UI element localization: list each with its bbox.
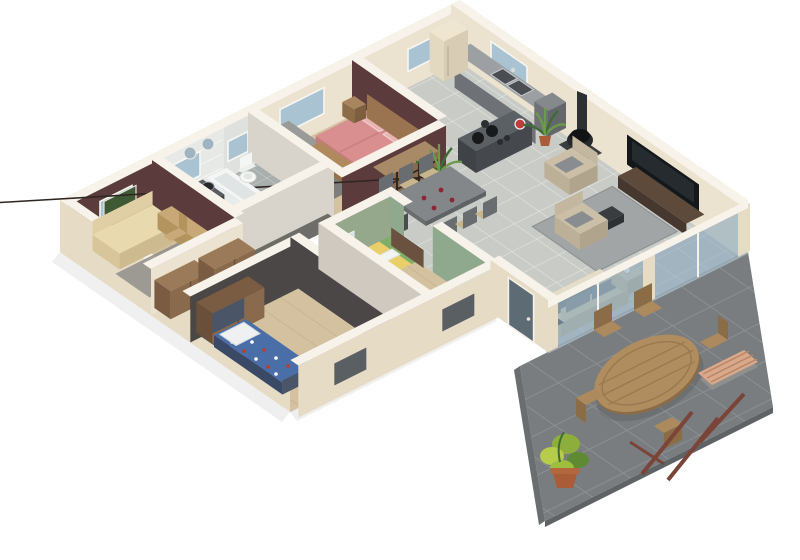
faucet — [511, 68, 515, 72]
wine-glass — [439, 188, 444, 193]
bath-mirror — [184, 147, 196, 159]
wine-glass — [422, 196, 427, 201]
bowl — [504, 135, 510, 141]
pot — [481, 120, 489, 128]
fridge — [430, 20, 468, 82]
cooktop-burner — [472, 132, 484, 144]
wine-glass — [432, 206, 437, 211]
bath-mirror — [202, 138, 214, 150]
door-handle — [527, 317, 531, 321]
bowl — [497, 139, 503, 145]
floorplan-render — [0, 0, 800, 560]
stove-flue — [577, 91, 587, 133]
isometric-house-svg — [0, 0, 800, 560]
wine-glass — [450, 198, 455, 203]
pillar — [546, 299, 558, 353]
house — [0, 0, 773, 527]
